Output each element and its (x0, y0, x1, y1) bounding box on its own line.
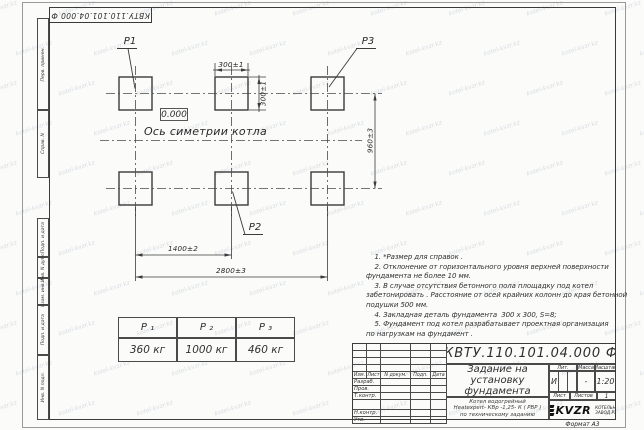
watermark-text: kotel-kvzr.kz (0, 159, 18, 177)
titleblock-signature-table: Изм. Лист N докум. Подп. Дата Разраб. Пр… (352, 343, 447, 424)
drawing-subtitle: Котел водогрейный Heatexpert- КВр -1,25-… (446, 397, 549, 420)
col-ndokum: N докум. (381, 372, 411, 379)
inverted-docnumber-text: КВТУ.110.101.04.000 Ф (51, 11, 150, 20)
col-list: Лист (367, 372, 381, 379)
margin-cell-perv-primen: Перв. примен. (37, 18, 49, 110)
watermark-text: kotel-kvzr.kz (0, 319, 18, 337)
inverted-docnumber-stamp: КВТУ.110.101.04.000 Ф (49, 7, 152, 23)
notes-block: 1. *Размер для справок . 2. Отклонение о… (366, 253, 618, 339)
margin-cell-vzam-inv: Взам. инв. N (37, 278, 49, 305)
watermark-text: kotel-kvzr.kz (639, 279, 644, 297)
scanned-drawing-sheet: { "watermark": { "text": "kotel-kvzr.kz"… (0, 0, 644, 430)
elevation-mark: 0.000 (160, 108, 188, 121)
drawing-title: Задание на установку фундамента (446, 364, 549, 397)
margin-cell-sprav-n: Справ. N (37, 110, 49, 178)
format-label: Формат А3 (549, 421, 616, 428)
note-line: фундамента не более 10 мм. (366, 272, 618, 282)
leader-label-p1: P1 (119, 36, 141, 47)
watermark-text: kotel-kvzr.kz (639, 119, 644, 137)
mass-value: - (577, 371, 595, 392)
lit-label: Лит. (549, 364, 577, 371)
margin-cell-inv-dubl: Инв. N дубл. (37, 257, 49, 278)
load-table-header-p1: P ₁ (118, 317, 177, 338)
note-line: подушки 500 мм. (366, 301, 618, 311)
watermark-text: kotel-kvzr.kz (0, 239, 18, 257)
load-table-value-p2: 1000 кг (177, 338, 236, 362)
sign-tkontr: Т.контр. (353, 393, 381, 400)
load-table-value-p1: 360 кг (118, 338, 177, 362)
watermark-text: kotel-kvzr.kz (0, 0, 18, 18)
dim-2800: 2800±3 (211, 266, 251, 275)
note-line: 3. В случае отсутствия бетонного пола пл… (366, 282, 618, 292)
dim-960: 960±3 (366, 124, 375, 158)
watermark-text: kotel-kvzr.kz (639, 359, 644, 377)
watermark-text: kotel-kvzr.kz (639, 199, 644, 217)
load-table-header-p2: P ₂ (177, 317, 236, 338)
doc-number: КВТУ.110.101.04.000 Ф (446, 343, 616, 364)
dim-300-vertical: 300±1 (259, 77, 268, 111)
sign-razrab: Разраб. (353, 379, 381, 386)
leader-label-p3: P3 (357, 36, 379, 47)
scale-label: Масштаб (595, 364, 616, 371)
sheet-label: Лист (549, 392, 570, 400)
lit-cell-3 (567, 371, 577, 392)
kvzr-logo: KVZR КОТЕЛЬНЫЙ ЗАВОД РЭП (549, 404, 616, 417)
leader-label-p2: P2 (244, 222, 266, 233)
load-table-value-p3: 460 кг (236, 338, 295, 362)
watermark-text: kotel-kvzr.kz (639, 39, 644, 57)
dim-300-horizontal: 300±1 (214, 60, 248, 69)
note-line: 4. Закладная деталь фундамента 300 х 300… (366, 311, 618, 321)
dim-1400: 1400±2 (163, 244, 203, 253)
col-izm: Изм. (353, 372, 367, 379)
sign-nkontr: Н.контр. (353, 410, 381, 417)
col-data: Дата (431, 372, 447, 379)
sign-utv: Утв. (353, 417, 381, 424)
sheets-value: 1 (597, 392, 616, 400)
company-logo-cell: KVZR КОТЕЛЬНЫЙ ЗАВОД РЭП (549, 400, 616, 420)
load-table-header-p3: P ₃ (236, 317, 295, 338)
note-line: 1. *Размер для справок . (366, 253, 618, 263)
watermark-text: kotel-kvzr.kz (0, 399, 18, 417)
scale-value: 1:20 (595, 371, 616, 392)
kvzr-logo-icon (549, 405, 554, 416)
col-podp: Подп. (411, 372, 431, 379)
watermark-text: kotel-kvzr.kz (0, 79, 18, 97)
kvzr-logo-caption: КОТЕЛЬНЫЙ ЗАВОД РЭП (595, 405, 616, 415)
symmetry-axis-label: Ось симетрии котла (143, 125, 268, 138)
note-line: по нагрузкам на фундамент . (366, 330, 618, 340)
note-line: 2. Отклонение от горизонтального уровня … (366, 263, 618, 273)
sign-prov: Пров. (353, 386, 381, 393)
margin-cell-inv-podl: Инв. N подл. (37, 355, 49, 420)
kvzr-logo-text: KVZR (556, 404, 591, 417)
margin-cell-podp-data-2: Подп. и дата (37, 305, 49, 355)
mass-label: Масса (577, 364, 595, 371)
note-line: 5. Фундамент под котел разрабатывает про… (366, 320, 618, 330)
sheets-label: Листов (570, 392, 597, 400)
note-line: забетонировать . Расстояние от осей край… (366, 291, 618, 301)
